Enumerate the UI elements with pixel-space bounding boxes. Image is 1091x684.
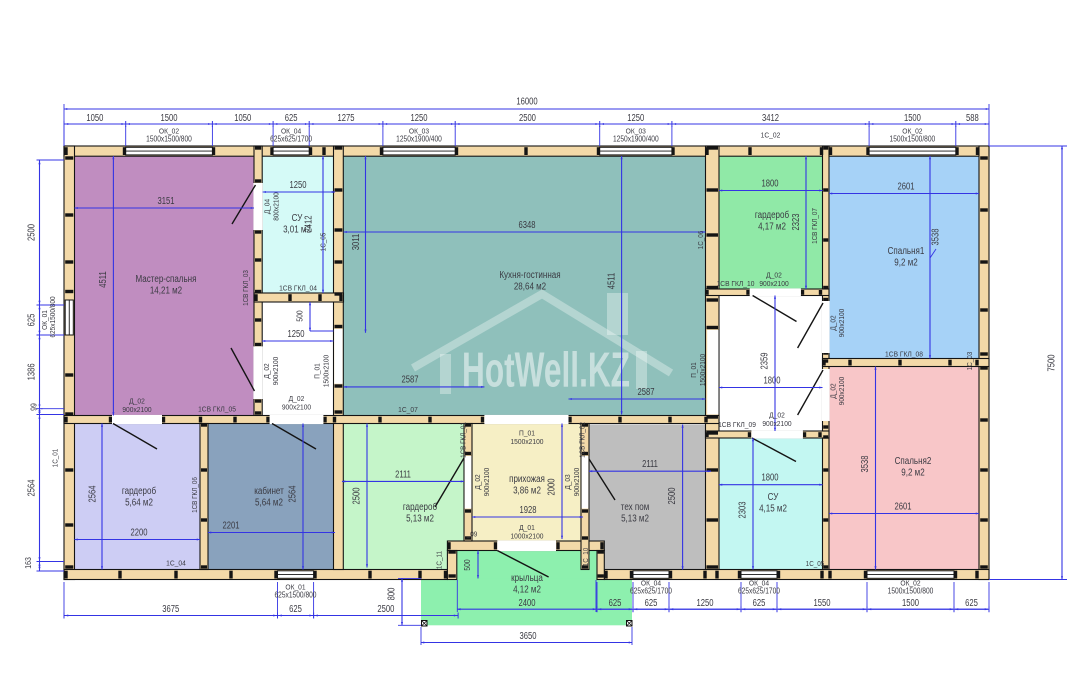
svg-text:3538: 3538 xyxy=(859,455,870,472)
svg-text:900х2100: 900х2100 xyxy=(282,403,311,411)
svg-text:14,21 м2: 14,21 м2 xyxy=(150,285,182,296)
svg-text:625х625/1700: 625х625/1700 xyxy=(630,586,672,596)
svg-text:1000х2100: 1000х2100 xyxy=(510,532,543,540)
svg-text:1СВ ГКЛ_09: 1СВ ГКЛ_09 xyxy=(718,421,756,429)
svg-text:1С_06: 1С_06 xyxy=(698,230,705,249)
svg-text:1500х2100: 1500х2100 xyxy=(510,438,543,446)
svg-text:3,86 м2: 3,86 м2 xyxy=(513,485,541,496)
svg-text:1500х2100: 1500х2100 xyxy=(700,354,707,386)
svg-text:1СВ ГКЛ_04: 1СВ ГКЛ_04 xyxy=(279,284,317,292)
svg-text:Д_02: Д_02 xyxy=(830,383,837,398)
svg-text:500: 500 xyxy=(462,559,472,570)
svg-text:2111: 2111 xyxy=(642,458,658,469)
svg-text:1С_11: 1С_11 xyxy=(436,551,443,569)
svg-text:2500: 2500 xyxy=(351,487,362,504)
svg-text:6348: 6348 xyxy=(519,219,536,230)
svg-text:1800: 1800 xyxy=(762,472,779,483)
svg-text:гардероб: гардероб xyxy=(122,485,156,496)
svg-text:Д_02: Д_02 xyxy=(289,395,305,403)
svg-text:2323: 2323 xyxy=(790,213,801,230)
svg-text:гардероб: гардероб xyxy=(755,209,789,220)
svg-text:Д_04: Д_04 xyxy=(264,199,271,214)
svg-text:1СВ ГКЛ_05: 1СВ ГКЛ_05 xyxy=(198,405,236,413)
svg-text:1500х1500/800: 1500х1500/800 xyxy=(146,134,192,144)
svg-text:3538: 3538 xyxy=(930,228,941,245)
svg-text:900х2100: 900х2100 xyxy=(759,279,788,287)
svg-text:1800: 1800 xyxy=(762,178,779,189)
svg-text:4,12 м2: 4,12 м2 xyxy=(513,584,541,595)
svg-text:3,01 м2: 3,01 м2 xyxy=(283,224,311,235)
svg-text:625х1500/800: 625х1500/800 xyxy=(275,590,317,600)
svg-text:1050: 1050 xyxy=(86,112,103,123)
svg-text:9,2 м2: 9,2 м2 xyxy=(901,467,924,478)
svg-text:4511: 4511 xyxy=(606,273,617,290)
svg-text:1С_05: 1С_05 xyxy=(806,561,825,568)
svg-text:крыльца: крыльца xyxy=(511,572,543,583)
svg-text:900х2100: 900х2100 xyxy=(574,468,581,497)
svg-text:5,13 м2: 5,13 м2 xyxy=(621,513,649,524)
svg-text:1500: 1500 xyxy=(161,112,178,123)
svg-text:1550: 1550 xyxy=(814,597,831,608)
svg-text:2500: 2500 xyxy=(377,603,394,614)
svg-text:2564: 2564 xyxy=(87,485,98,502)
svg-text:3151: 3151 xyxy=(158,195,175,206)
svg-text:900х2100: 900х2100 xyxy=(839,377,846,406)
svg-text:П_01: П_01 xyxy=(691,362,698,378)
svg-text:99: 99 xyxy=(29,403,39,411)
svg-text:2564: 2564 xyxy=(287,485,298,502)
svg-text:тех пом: тех пом xyxy=(621,501,649,512)
svg-text:9,2 м2: 9,2 м2 xyxy=(894,257,917,268)
svg-text:2400: 2400 xyxy=(519,597,536,608)
svg-text:Д_02: Д_02 xyxy=(766,271,782,279)
svg-text:Д_03: Д_03 xyxy=(565,474,572,489)
svg-text:1С_03: 1С_03 xyxy=(967,351,974,370)
svg-text:2587: 2587 xyxy=(402,374,419,385)
svg-text:625х625/1700: 625х625/1700 xyxy=(270,134,312,144)
svg-text:7500: 7500 xyxy=(1046,354,1057,371)
svg-text:625: 625 xyxy=(289,603,302,614)
svg-text:1250: 1250 xyxy=(697,597,714,608)
svg-text:625: 625 xyxy=(753,597,766,608)
svg-text:Д_01: Д_01 xyxy=(519,524,535,532)
svg-text:1С_02: 1С_02 xyxy=(761,131,781,139)
svg-text:900х2100: 900х2100 xyxy=(273,357,280,386)
svg-text:5,13 м2: 5,13 м2 xyxy=(406,513,434,524)
svg-text:1С_07: 1С_07 xyxy=(398,406,418,414)
svg-text:900х2100: 900х2100 xyxy=(122,406,151,414)
svg-text:1250: 1250 xyxy=(288,328,305,339)
svg-text:4,17 м2: 4,17 м2 xyxy=(758,221,786,232)
svg-text:4511: 4511 xyxy=(97,271,108,288)
svg-text:1250: 1250 xyxy=(411,112,428,123)
svg-text:1С_04: 1С_04 xyxy=(166,559,186,567)
svg-text:800х2100: 800х2100 xyxy=(273,192,280,221)
svg-text:3412: 3412 xyxy=(762,112,779,123)
svg-text:1С_10: 1С_10 xyxy=(583,547,590,566)
svg-text:588: 588 xyxy=(966,112,979,123)
svg-text:1СВ ГКЛ_01: 1СВ ГКЛ_01 xyxy=(460,422,467,458)
svg-text:1500: 1500 xyxy=(904,112,921,123)
svg-text:4,15 м2: 4,15 м2 xyxy=(759,503,787,514)
svg-text:Д_02: Д_02 xyxy=(475,474,482,489)
svg-text:2564: 2564 xyxy=(26,479,37,496)
svg-text:Д_02: Д_02 xyxy=(769,411,785,419)
svg-text:800: 800 xyxy=(386,588,397,601)
svg-text:2601: 2601 xyxy=(895,501,912,512)
svg-text:1275: 1275 xyxy=(338,112,355,123)
svg-text:625: 625 xyxy=(645,597,658,608)
svg-text:28,64 м2: 28,64 м2 xyxy=(514,281,546,292)
svg-text:2500: 2500 xyxy=(26,224,37,241)
svg-text:Мастер-спальня: Мастер-спальня xyxy=(136,273,197,284)
svg-text:2587: 2587 xyxy=(638,386,655,397)
svg-text:1500: 1500 xyxy=(902,597,919,608)
svg-text:прихожая: прихожая xyxy=(509,473,545,484)
svg-text:Д_02: Д_02 xyxy=(129,397,145,405)
svg-text:1СВ ГКЛ_02: 1СВ ГКЛ_02 xyxy=(579,422,586,458)
svg-text:3011: 3011 xyxy=(350,234,361,251)
svg-text:1050: 1050 xyxy=(234,112,251,123)
svg-text:1500х1500/800: 1500х1500/800 xyxy=(888,586,934,596)
svg-text:Спальня2: Спальня2 xyxy=(895,455,932,466)
svg-text:2500: 2500 xyxy=(666,487,677,504)
svg-text:2601: 2601 xyxy=(898,181,915,192)
svg-text:1500х2100: 1500х2100 xyxy=(323,355,330,387)
svg-text:гардероб: гардероб xyxy=(403,501,437,512)
svg-text:2200: 2200 xyxy=(131,527,148,538)
svg-text:_09: _09 xyxy=(466,531,478,538)
svg-text:1800: 1800 xyxy=(764,375,781,386)
svg-text:1928: 1928 xyxy=(520,504,537,515)
svg-text:1СВ ГКЛ_07: 1СВ ГКЛ_07 xyxy=(812,208,819,244)
svg-text:2201: 2201 xyxy=(223,520,240,531)
svg-text:625х1500/800: 625х1500/800 xyxy=(50,296,57,337)
svg-text:Д_02: Д_02 xyxy=(830,315,837,330)
svg-text:ОК_01: ОК_01 xyxy=(42,310,49,330)
svg-text:СУ: СУ xyxy=(768,491,779,502)
svg-text:1СВ ГКЛ_06: 1СВ ГКЛ_06 xyxy=(192,477,199,513)
svg-text:1С_01: 1С_01 xyxy=(52,448,59,467)
svg-text:П_01: П_01 xyxy=(519,429,535,437)
svg-text:900х2100: 900х2100 xyxy=(484,468,491,497)
svg-text:1250х1900/400: 1250х1900/400 xyxy=(613,134,659,144)
svg-text:16000: 16000 xyxy=(516,96,537,107)
svg-text:Спальня1: Спальня1 xyxy=(888,245,925,256)
svg-text:3675: 3675 xyxy=(162,603,179,614)
svg-text:625х625/1700: 625х625/1700 xyxy=(738,586,780,596)
svg-text:2111: 2111 xyxy=(395,468,411,479)
svg-text:1С_05: 1С_05 xyxy=(320,232,327,251)
svg-text:1СВ ГКЛ_08: 1СВ ГКЛ_08 xyxy=(885,350,923,358)
svg-text:П_01: П_01 xyxy=(314,363,321,379)
svg-text:1250: 1250 xyxy=(290,179,307,190)
svg-text:2000: 2000 xyxy=(546,478,557,495)
svg-text:1386: 1386 xyxy=(26,363,37,380)
svg-text:Кухня-гостинная: Кухня-гостинная xyxy=(499,269,560,280)
svg-text:3650: 3650 xyxy=(520,630,537,641)
svg-text:500: 500 xyxy=(295,310,305,321)
svg-text:2500: 2500 xyxy=(519,112,536,123)
svg-text:Д_02: Д_02 xyxy=(264,363,271,378)
svg-text:900х2100: 900х2100 xyxy=(762,420,791,428)
svg-text:2303: 2303 xyxy=(737,501,748,518)
svg-text:625: 625 xyxy=(285,112,298,123)
svg-text:СУ: СУ xyxy=(292,212,303,223)
svg-text:5,64 м2: 5,64 м2 xyxy=(125,497,153,508)
svg-text:1СВ ГКЛ_03: 1СВ ГКЛ_03 xyxy=(243,270,250,306)
svg-text:1250: 1250 xyxy=(627,112,644,123)
svg-text:кабинет: кабинет xyxy=(254,485,284,496)
svg-text:625: 625 xyxy=(26,314,37,327)
svg-text:163: 163 xyxy=(23,557,33,569)
svg-text:1250х1900/400: 1250х1900/400 xyxy=(396,134,442,144)
svg-text:2359: 2359 xyxy=(759,352,770,369)
svg-text:900х2100: 900х2100 xyxy=(839,309,846,338)
svg-text:HotWell.KZ: HotWell.KZ xyxy=(462,344,630,398)
svg-text:625: 625 xyxy=(609,597,622,608)
svg-text:1СВ ГКЛ_10: 1СВ ГКЛ_10 xyxy=(717,280,755,288)
svg-text:625: 625 xyxy=(965,597,978,608)
svg-text:1500х1500/800: 1500х1500/800 xyxy=(890,134,936,144)
svg-text:5,64 м2: 5,64 м2 xyxy=(255,497,283,508)
